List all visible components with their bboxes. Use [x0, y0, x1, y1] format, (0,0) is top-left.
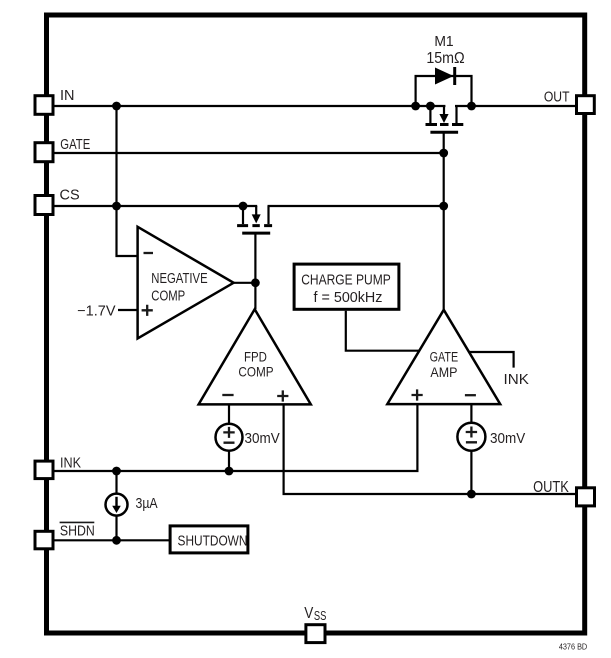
- svg-text:AMP: AMP: [430, 364, 457, 380]
- svg-text:SS: SS: [314, 610, 326, 624]
- svg-text:SHDN: SHDN: [60, 523, 95, 539]
- svg-text:IN: IN: [60, 88, 75, 104]
- svg-text:COMP: COMP: [238, 365, 273, 380]
- svg-text:GATE: GATE: [430, 349, 459, 365]
- svg-text:CS: CS: [60, 187, 80, 203]
- svg-text:COMP: COMP: [151, 287, 185, 304]
- svg-text:V: V: [304, 605, 313, 622]
- svg-text:30mV: 30mV: [245, 429, 281, 446]
- svg-text:4376 BD: 4376 BD: [559, 642, 588, 652]
- svg-text:OUTK: OUTK: [533, 479, 569, 496]
- svg-text:GATE: GATE: [60, 136, 90, 153]
- svg-text:15mΩ: 15mΩ: [426, 51, 464, 68]
- svg-text:CHARGE PUMP: CHARGE PUMP: [301, 271, 391, 287]
- svg-text:3µA: 3µA: [136, 495, 158, 511]
- svg-text:f = 500kHz: f = 500kHz: [314, 290, 383, 306]
- svg-text:OUT: OUT: [544, 88, 570, 104]
- svg-text:30mV: 30mV: [490, 429, 526, 446]
- svg-text:INK: INK: [60, 455, 81, 471]
- svg-text:NEGATIVE: NEGATIVE: [151, 270, 208, 287]
- svg-text:INK: INK: [504, 371, 529, 388]
- svg-text:−1.7V: −1.7V: [77, 303, 116, 319]
- svg-text:M1: M1: [434, 34, 453, 50]
- svg-text:SHUTDOWN: SHUTDOWN: [178, 532, 248, 548]
- svg-text:FPD: FPD: [244, 350, 267, 365]
